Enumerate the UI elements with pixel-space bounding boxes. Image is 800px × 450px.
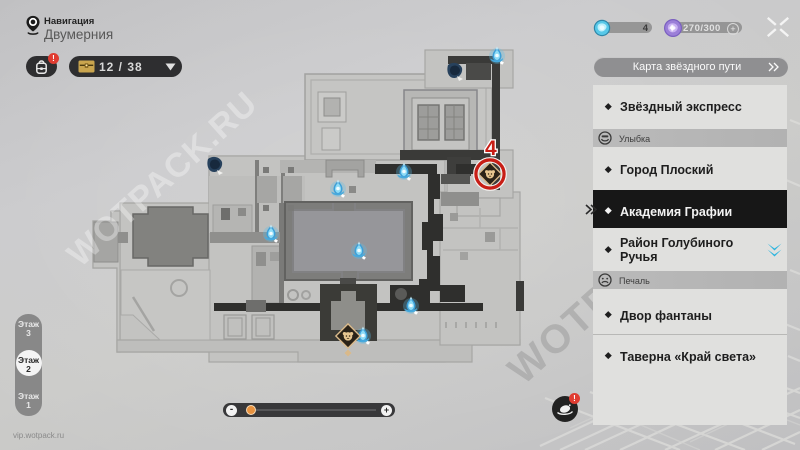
svg-text:4: 4 [485, 137, 497, 160]
